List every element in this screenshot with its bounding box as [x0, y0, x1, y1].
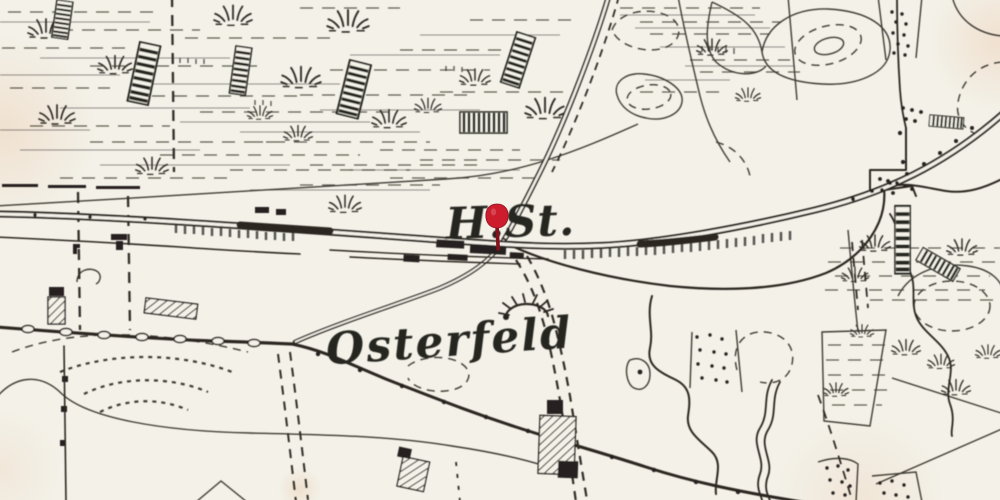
location-pin-stem: [497, 226, 498, 249]
historical-map-surface[interactable]: H.St. Osterfeld: [0, 0, 1000, 500]
map-canvas: H.St. Osterfeld: [0, 0, 1000, 500]
station-label: H.St.: [443, 195, 576, 251]
location-pin-head: [486, 204, 508, 228]
horizontal-ladder: [460, 112, 507, 133]
location-pin-highlight: [491, 208, 496, 215]
